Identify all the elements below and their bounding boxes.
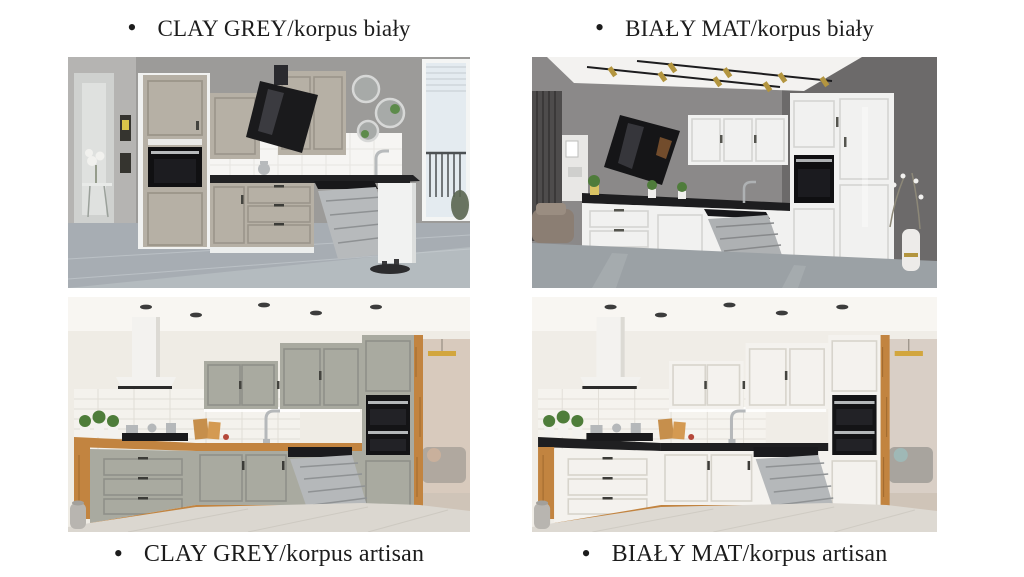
photo-clay-grey-korpus-bialy <box>68 57 470 288</box>
caption-clay-grey-korpus-bialy: • CLAY GREY/korpus biały <box>68 0 470 57</box>
kitchen-render-clay-grey-white <box>68 57 470 288</box>
caption-bialy-mat-korpus-bialy: • BIAŁY MAT/korpus biały <box>532 0 937 57</box>
caption-clay-grey-korpus-artisan: • CLAY GREY/korpus artisan <box>68 532 470 577</box>
upper-cabinets <box>688 115 788 165</box>
white-end-cabinet <box>378 183 416 263</box>
photo-bialy-mat-korpus-bialy <box>532 57 937 288</box>
variant-label-bialy-mat-bialy: BIAŁY MAT/korpus biały <box>625 16 874 42</box>
bullet-icon: • <box>114 541 123 567</box>
tall-columns <box>790 93 894 269</box>
kitchen-render-white-white <box>532 57 937 288</box>
bullet-icon: • <box>582 541 591 567</box>
photo-clay-grey-korpus-artisan <box>68 297 470 532</box>
base-cabinets <box>210 183 314 253</box>
photo-bialy-mat-korpus-artisan <box>532 297 937 532</box>
window-balcony <box>422 59 470 221</box>
variant-label-bialy-mat-artisan: BIAŁY MAT/korpus artisan <box>612 541 888 568</box>
caption-bialy-mat-korpus-artisan: • BIAŁY MAT/korpus artisan <box>532 532 937 577</box>
kitchen-render-clay-grey-artisan <box>68 297 470 532</box>
tall-oven-column <box>138 73 210 249</box>
bullet-icon: • <box>127 15 136 41</box>
product-collage: • CLAY GREY/korpus biały • BIAŁY MAT/kor… <box>0 0 1024 577</box>
variant-label-clay-grey-artisan: CLAY GREY/korpus artisan <box>144 541 424 568</box>
kitchen-render-white-artisan <box>532 297 937 532</box>
variant-label-clay-grey-bialy: CLAY GREY/korpus biały <box>157 16 410 42</box>
bullet-icon: • <box>595 15 604 41</box>
